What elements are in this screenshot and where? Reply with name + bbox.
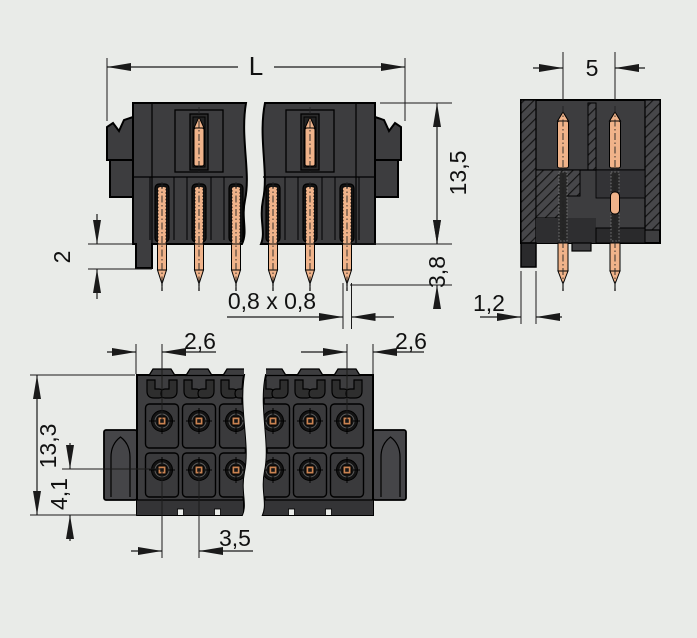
dim-label-row-offset: 4,1 (46, 478, 72, 510)
side-right-wall (645, 100, 660, 230)
bottom-left-cells (137, 369, 253, 516)
dim-label-row-pitch: 5 (586, 55, 599, 81)
mounting-ear-right-foot (375, 160, 398, 197)
dim-label-left-step: 2 (49, 251, 75, 264)
technical-drawing: L 13,5 3,8 2 0 (0, 0, 697, 638)
mounting-ear-left-foot (110, 160, 133, 197)
side-left-wall (521, 100, 536, 243)
side-divider (588, 103, 596, 170)
dim-leg-width: 1,2 (473, 271, 562, 324)
side-left-leg (521, 243, 536, 267)
dim-label-edge-to-pin-right: 2,6 (395, 328, 427, 354)
mounting-ear-left (107, 117, 133, 160)
front-view: L 13,5 3,8 2 0 (49, 51, 471, 329)
dim-label-housing-height: 13,5 (445, 151, 471, 196)
bottom-view: 2,6 2,6 13,3 4,1 (30, 328, 427, 558)
dim-label-housing-depth: 13,3 (35, 424, 61, 469)
front-pins-right (261, 177, 359, 291)
dim-label-overall-length: L (249, 51, 263, 81)
technical-drawing-page: L 13,5 3,8 2 0 (0, 0, 697, 638)
side-bottom-tab (572, 243, 591, 251)
side-pin-front (558, 106, 569, 291)
bottom-flange-right (373, 430, 406, 500)
bottom-right-cells (257, 369, 374, 516)
mounting-ear-right (375, 117, 401, 160)
dim-label-leg-width: 1,2 (473, 290, 505, 316)
side-pin-rear-contact (611, 192, 620, 214)
dim-label-pin-protrusion: 3,8 (424, 256, 450, 288)
side-view: 5 1,2 (473, 52, 660, 324)
dim-label-edge-to-pin-left: 2,6 (184, 328, 216, 354)
dim-label-pin-cross-section: 0,8 x 0,8 (228, 288, 316, 314)
dim-label-pin-pitch: 3,5 (219, 525, 251, 551)
bottom-flange-left (104, 430, 137, 500)
dim-row-pitch: 5 (533, 52, 645, 100)
dim-pin-cross-section: 0,8 x 0,8 (227, 283, 394, 329)
front-pins-left (150, 177, 248, 291)
